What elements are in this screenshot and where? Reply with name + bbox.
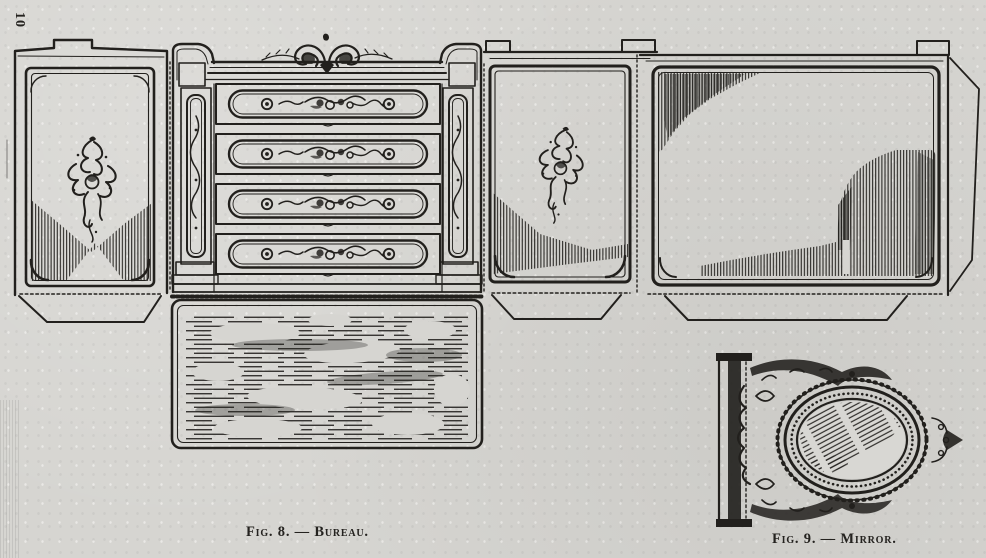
engraving-plate — [0, 0, 986, 558]
base-molding — [173, 284, 481, 292]
glue-tab-right — [950, 58, 979, 291]
glue-flap-middle — [492, 295, 621, 319]
glue-flap-left — [19, 296, 161, 322]
figure-9-caption: Fig. 9. — Mirror. — [772, 531, 897, 548]
pilaster-right — [436, 63, 482, 292]
bureau-pattern — [15, 34, 979, 527]
glue-flap-back — [665, 296, 907, 320]
back-panel — [640, 41, 979, 320]
mirror-base-top-cap — [716, 353, 752, 361]
side-panel-left — [15, 40, 167, 322]
mirror-figure — [716, 353, 963, 527]
bureau-front-panel — [172, 34, 482, 297]
floral-spray-icon — [68, 137, 115, 243]
drawer-4 — [216, 234, 440, 276]
drawer-3 — [216, 184, 440, 226]
pilaster-left — [172, 63, 218, 292]
drawer-1 — [216, 84, 440, 126]
shading-hatch — [30, 199, 152, 281]
top-panel-marbled — [172, 300, 482, 448]
side-panel-middle — [484, 40, 657, 319]
drawer-2 — [216, 134, 440, 176]
figure-8-caption: Fig. 8. — Bureau. — [246, 524, 369, 541]
shading-hatch — [493, 193, 628, 274]
mirror-crest — [932, 418, 963, 462]
shading-hatch-right — [700, 150, 936, 276]
plate-fig8-fig9: 10 — [0, 0, 986, 558]
mirror-base-bottom-cap — [716, 519, 752, 527]
scanned-book-page: { "page": { "number": "10", "paper_color… — [0, 0, 986, 558]
floral-spray-icon — [532, 124, 587, 226]
